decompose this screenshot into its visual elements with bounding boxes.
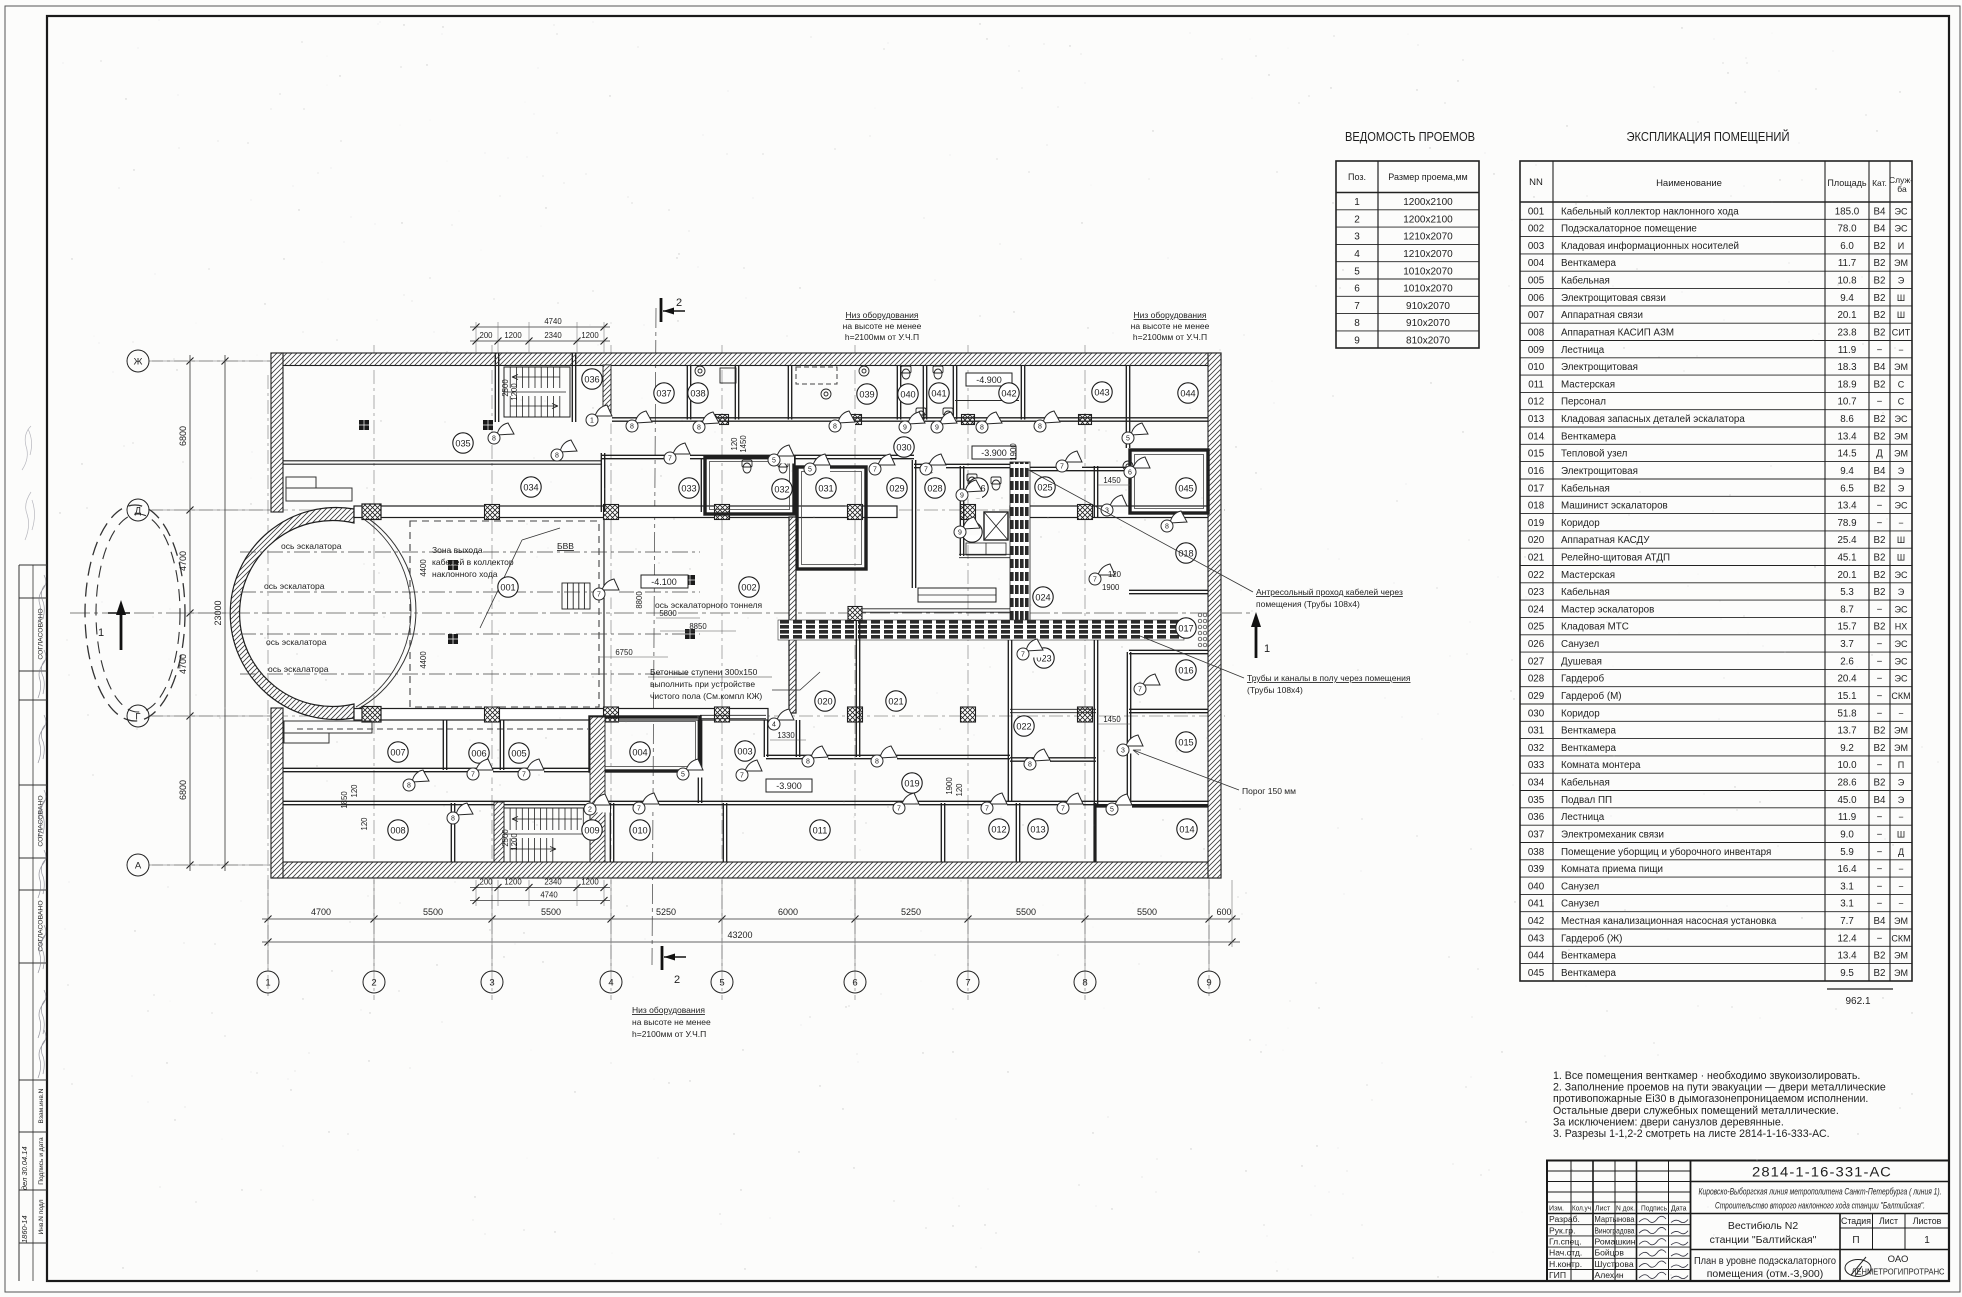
svg-text:Ш: Ш (1897, 310, 1905, 320)
svg-text:9.4: 9.4 (1840, 466, 1854, 477)
svg-text:032: 032 (774, 484, 789, 494)
svg-text:024: 024 (1035, 592, 1050, 602)
svg-text:021: 021 (888, 696, 903, 706)
svg-text:040: 040 (900, 389, 915, 399)
svg-text:033: 033 (1528, 760, 1545, 771)
svg-text:019: 019 (1528, 518, 1544, 529)
svg-text:П: П (1898, 760, 1904, 770)
svg-text:Кладовая МТС: Кладовая МТС (1561, 622, 1629, 633)
svg-text:041: 041 (1528, 899, 1544, 910)
svg-text:Низ оборудования: Низ оборудования (846, 310, 919, 320)
svg-text:Венткамера: Венткамера (1561, 726, 1616, 737)
svg-text:6000: 6000 (778, 907, 798, 917)
svg-text:ось эскалатора: ось эскалатора (264, 581, 325, 591)
svg-text:009: 009 (1528, 345, 1544, 356)
svg-text:9: 9 (903, 425, 907, 432)
svg-text:9: 9 (935, 425, 939, 432)
svg-text:Кол.уч: Кол.уч (1572, 1206, 1591, 1213)
svg-text:044: 044 (1528, 951, 1545, 962)
svg-text:2: 2 (674, 974, 680, 986)
svg-text:В2: В2 (1874, 951, 1886, 962)
svg-text:002: 002 (1528, 224, 1544, 235)
svg-text:006: 006 (471, 748, 486, 758)
svg-text:СОГЛАСОВАНО: СОГЛАСОВАНО (38, 900, 45, 951)
svg-text:Э: Э (1898, 276, 1905, 286)
svg-text:В2: В2 (1874, 310, 1886, 321)
svg-text:1900: 1900 (945, 777, 954, 795)
svg-text:23.8: 23.8 (1837, 328, 1857, 339)
svg-text:3.1: 3.1 (1840, 881, 1854, 892)
svg-text:-4.100: -4.100 (651, 577, 677, 587)
svg-text:13.4: 13.4 (1837, 951, 1857, 962)
svg-text:7: 7 (471, 772, 475, 779)
svg-text:1450: 1450 (1103, 476, 1121, 485)
svg-text:−: − (1877, 881, 1883, 892)
svg-text:дел 30.04.14: дел 30.04.14 (20, 1146, 29, 1190)
svg-text:8: 8 (980, 425, 984, 432)
svg-text:029: 029 (889, 483, 904, 493)
svg-text:Низ оборудования: Низ оборудования (1134, 310, 1207, 320)
svg-text:8850: 8850 (689, 622, 707, 631)
svg-text:Э: Э (1898, 483, 1905, 493)
svg-text:В2: В2 (1874, 483, 1886, 494)
svg-text:В2: В2 (1874, 258, 1886, 269)
svg-text:-4.900: -4.900 (976, 375, 1002, 385)
svg-text:В4: В4 (1874, 466, 1887, 477)
svg-text:ЭМ: ЭМ (1894, 449, 1908, 459)
svg-text:13.4: 13.4 (1837, 431, 1857, 442)
svg-text:Мартынова: Мартынова (1595, 1214, 1635, 1224)
svg-text:ГИП: ГИП (1549, 1270, 1566, 1280)
svg-text:13.4: 13.4 (1837, 501, 1857, 512)
svg-text:ЭМ: ЭМ (1894, 916, 1908, 926)
svg-text:Кат.: Кат. (1872, 178, 1887, 188)
svg-text:036: 036 (584, 374, 599, 384)
svg-text:1: 1 (1354, 197, 1360, 208)
svg-text:5: 5 (772, 458, 776, 465)
svg-text:017: 017 (1528, 483, 1544, 494)
svg-text:В4: В4 (1874, 224, 1887, 235)
svg-text:ЭМ: ЭМ (1894, 968, 1908, 978)
svg-text:2: 2 (588, 807, 592, 814)
svg-text:ЭС: ЭС (1895, 224, 1908, 234)
svg-text:на высоте не менее: на высоте не менее (843, 321, 922, 331)
svg-text:43200: 43200 (727, 930, 752, 940)
svg-text:−: − (1877, 501, 1883, 512)
svg-text:2: 2 (371, 978, 376, 989)
svg-text:003: 003 (737, 746, 752, 756)
svg-text:на высоте не менее: на высоте не менее (1131, 321, 1210, 331)
svg-text:Венткамера: Венткамера (1561, 258, 1616, 269)
svg-text:25.4: 25.4 (1837, 535, 1857, 546)
svg-text:007: 007 (1528, 310, 1544, 321)
svg-text:7: 7 (740, 773, 744, 780)
svg-text:022: 022 (1528, 570, 1544, 581)
svg-text:ба: ба (1897, 184, 1907, 194)
svg-text:7: 7 (1061, 806, 1065, 813)
svg-text:чистого пола (См.компл КЖ): чистого пола (См.компл КЖ) (650, 691, 762, 701)
svg-text:016: 016 (1178, 665, 1193, 675)
svg-text:1900: 1900 (1009, 443, 1018, 461)
svg-text:Инв.N подл: Инв.N подл (38, 1199, 45, 1234)
svg-text:А: А (135, 861, 142, 872)
svg-text:Комната монтера: Комната монтера (1561, 760, 1641, 771)
svg-text:ЭС: ЭС (1895, 674, 1908, 684)
svg-text:14.5: 14.5 (1837, 449, 1857, 460)
svg-text:7: 7 (924, 467, 928, 474)
svg-text:Персонал: Персонал (1561, 397, 1606, 408)
svg-text:Трубы и каналы в полу через по: Трубы и каналы в полу через помещения (1247, 673, 1411, 683)
svg-text:2500: 2500 (501, 379, 510, 397)
svg-text:010: 010 (632, 825, 647, 835)
svg-text:003: 003 (1528, 241, 1545, 252)
svg-text:ЭМ: ЭМ (1894, 362, 1908, 372)
svg-text:024: 024 (1528, 604, 1545, 615)
svg-text:СКМ: СКМ (1891, 691, 1910, 701)
svg-text:В2: В2 (1874, 968, 1886, 979)
svg-text:−: − (1898, 881, 1903, 891)
svg-text:8: 8 (1082, 978, 1087, 989)
svg-text:18.9: 18.9 (1837, 379, 1856, 390)
svg-text:033: 033 (681, 483, 696, 493)
svg-text:Ш: Ш (1897, 553, 1905, 563)
svg-text:6800: 6800 (178, 426, 188, 446)
svg-text:Ш: Ш (1897, 293, 1905, 303)
svg-text:010: 010 (1528, 362, 1545, 373)
svg-text:5250: 5250 (901, 907, 921, 917)
svg-text:7: 7 (1354, 301, 1360, 312)
svg-text:6.5: 6.5 (1840, 483, 1854, 494)
svg-text:5250: 5250 (656, 907, 676, 917)
svg-text:4700: 4700 (178, 551, 188, 571)
svg-text:−: − (1877, 691, 1883, 702)
svg-text:N док.: N док. (1616, 1206, 1635, 1213)
svg-text:041: 041 (931, 388, 946, 398)
svg-text:4700: 4700 (311, 907, 331, 917)
svg-text:Коридор: Коридор (1561, 518, 1600, 529)
svg-text:2814-1-16-331-АС: 2814-1-16-331-АС (1752, 1165, 1892, 1180)
svg-text:Дата: Дата (1671, 1206, 1687, 1213)
svg-text:008: 008 (1528, 328, 1545, 339)
svg-text:6.0: 6.0 (1840, 241, 1854, 252)
svg-text:7: 7 (597, 592, 601, 599)
svg-text:018: 018 (1178, 548, 1193, 558)
svg-text:5: 5 (808, 467, 812, 474)
svg-text:51.8: 51.8 (1837, 708, 1857, 719)
svg-text:45.1: 45.1 (1837, 553, 1856, 564)
svg-text:4740: 4740 (544, 317, 562, 326)
svg-text:5500: 5500 (541, 907, 561, 917)
svg-text:Электрощитовая связи: Электрощитовая связи (1561, 293, 1666, 304)
svg-text:036: 036 (1528, 812, 1545, 823)
svg-text:2. Заполнение проемов на п: 2. Заполнение проемов на пути эвакуации … (1553, 1082, 1886, 1094)
svg-text:Антресольный проход кабелей че: Антресольный проход кабелей через (1256, 587, 1403, 597)
svg-text:031: 031 (818, 483, 833, 493)
svg-text:2: 2 (676, 297, 682, 309)
svg-text:Помещение уборщиц и уборочного: Помещение уборщиц и уборочного инвентаря (1561, 847, 1771, 858)
svg-text:1: 1 (98, 627, 104, 639)
svg-text:−: − (1877, 397, 1883, 408)
svg-text:Площадь: Площадь (1827, 178, 1866, 188)
svg-text:7: 7 (965, 978, 970, 989)
svg-text:014: 014 (1179, 824, 1194, 834)
svg-text:120: 120 (360, 817, 369, 831)
svg-text:1. Все помещения венткамер: 1. Все помещения венткамер · необходимо … (1553, 1070, 1860, 1082)
svg-text:−: − (1877, 830, 1883, 841)
svg-text:039: 039 (859, 389, 874, 399)
svg-text:7: 7 (1138, 687, 1142, 694)
svg-text:В2: В2 (1874, 587, 1886, 598)
svg-text:910х2070: 910х2070 (1406, 318, 1450, 329)
svg-text:045: 045 (1528, 968, 1545, 979)
svg-text:011: 011 (1528, 379, 1544, 390)
svg-text:1200: 1200 (510, 383, 519, 401)
svg-text:022: 022 (1016, 721, 1031, 731)
svg-text:Вестибюль N2: Вестибюль N2 (1728, 1220, 1799, 1232)
svg-text:5800: 5800 (659, 609, 677, 618)
svg-text:034: 034 (523, 482, 538, 492)
svg-text:7: 7 (1021, 652, 1025, 659)
svg-text:наклонного хода: наклонного хода (432, 569, 498, 579)
svg-text:6: 6 (1128, 470, 1132, 477)
svg-text:Гардероб: Гардероб (1561, 674, 1604, 685)
svg-text:2: 2 (1354, 214, 1360, 225)
svg-text:Н.контр.: Н.контр. (1549, 1259, 1582, 1269)
svg-text:6: 6 (1354, 284, 1360, 295)
svg-text:1210х2070: 1210х2070 (1403, 232, 1453, 243)
svg-text:Кабельная: Кабельная (1561, 778, 1610, 789)
svg-text:−: − (1898, 345, 1903, 355)
svg-text:Э: Э (1898, 795, 1905, 805)
svg-text:−: − (1877, 345, 1883, 356)
svg-text:1: 1 (1924, 1235, 1930, 1246)
svg-text:h=2100мм от У.Ч.П: h=2100мм от У.Ч.П (1133, 332, 1207, 342)
svg-text:−: − (1877, 812, 1883, 823)
svg-text:Ш: Ш (1897, 830, 1905, 840)
svg-text:001: 001 (500, 582, 515, 592)
svg-text:БВВ: БВВ (557, 541, 574, 551)
svg-text:021: 021 (1528, 553, 1544, 564)
svg-text:2.6: 2.6 (1840, 656, 1854, 667)
svg-text:8: 8 (451, 816, 455, 823)
svg-text:4: 4 (1354, 249, 1360, 260)
svg-text:План в уровне подэскалаторного: План в уровне подэскалаторного (1694, 1255, 1836, 1267)
svg-text:042: 042 (1528, 916, 1544, 927)
svg-text:013: 013 (1528, 414, 1545, 425)
svg-text:8: 8 (555, 453, 559, 460)
svg-text:ЭС: ЭС (1895, 206, 1908, 216)
svg-text:Санузел: Санузел (1561, 899, 1599, 910)
svg-text:В2: В2 (1874, 431, 1886, 442)
svg-text:ОАО: ОАО (1888, 1254, 1909, 1265)
svg-text:8: 8 (492, 436, 496, 443)
svg-text:018: 018 (1528, 501, 1545, 512)
svg-text:9.2: 9.2 (1840, 743, 1854, 754)
svg-text:Санузел: Санузел (1561, 639, 1599, 650)
svg-text:−: − (1898, 708, 1903, 718)
svg-text:ВЕДОМОСТЬ ПРОЕМОВ: ВЕДОМОСТЬ ПРОЕМОВ (1345, 130, 1475, 144)
svg-text:023: 023 (1528, 587, 1545, 598)
svg-text:1200: 1200 (510, 833, 519, 851)
svg-text:035: 035 (455, 438, 470, 448)
svg-text:8.7: 8.7 (1840, 604, 1854, 615)
svg-text:Изм.: Изм. (1549, 1206, 1564, 1213)
svg-text:013: 013 (1030, 824, 1045, 834)
svg-text:962.1: 962.1 (1845, 996, 1870, 1007)
svg-text:5500: 5500 (1016, 907, 1036, 917)
svg-text:Лестница: Лестница (1561, 345, 1605, 356)
svg-text:039: 039 (1528, 864, 1544, 875)
svg-text:В2: В2 (1874, 414, 1886, 425)
svg-text:Наименование: Наименование (1656, 178, 1722, 189)
svg-text:017: 017 (1178, 623, 1193, 633)
svg-text:1: 1 (1264, 643, 1270, 655)
svg-text:Кабельная: Кабельная (1561, 483, 1610, 494)
svg-text:Кладовая информационных носите: Кладовая информационных носителей (1561, 241, 1739, 252)
svg-text:78.0: 78.0 (1837, 224, 1857, 235)
svg-text:20.1: 20.1 (1837, 570, 1856, 581)
svg-text:В2: В2 (1874, 778, 1886, 789)
svg-text:И: И (1898, 241, 1904, 251)
svg-text:−: − (1877, 639, 1883, 650)
svg-text:1010х2070: 1010х2070 (1403, 284, 1453, 295)
svg-text:NN: NN (1529, 177, 1543, 188)
svg-text:6800: 6800 (178, 780, 188, 800)
svg-text:015: 015 (1178, 737, 1193, 747)
svg-text:8: 8 (833, 424, 837, 431)
svg-text:002: 002 (741, 582, 756, 592)
svg-text:ЭС: ЭС (1895, 604, 1908, 614)
svg-text:помещения (отм.-3,900): помещения (отм.-3,900) (1707, 1268, 1824, 1280)
svg-text:18.3: 18.3 (1837, 362, 1857, 373)
svg-text:Электромеханик связи: Электромеханик связи (1561, 830, 1664, 841)
svg-text:5: 5 (681, 772, 685, 779)
svg-text:005: 005 (511, 748, 526, 758)
svg-text:В4: В4 (1874, 362, 1887, 373)
svg-text:Мастерская: Мастерская (1561, 570, 1615, 581)
svg-text:Мастерская: Мастерская (1561, 379, 1615, 390)
svg-text:5: 5 (719, 978, 724, 989)
svg-text:Д: Д (135, 506, 142, 517)
svg-text:Ж: Ж (134, 357, 143, 368)
svg-text:Листов: Листов (1913, 1216, 1942, 1226)
svg-text:1: 1 (265, 978, 270, 989)
svg-text:9.5: 9.5 (1840, 968, 1854, 979)
svg-text:−: − (1898, 518, 1903, 528)
svg-text:Алехин: Алехин (1595, 1270, 1624, 1280)
svg-text:032: 032 (1528, 743, 1544, 754)
svg-text:h=2100мм от У.Ч.П: h=2100мм от У.Ч.П (845, 332, 919, 342)
svg-text:Э: Э (1898, 466, 1905, 476)
svg-text:120: 120 (955, 783, 964, 797)
svg-text:С: С (1898, 379, 1905, 389)
svg-text:Лист: Лист (1595, 1206, 1611, 1213)
svg-text:11.9: 11.9 (1838, 812, 1856, 823)
svg-text:ось эскалатора: ось эскалатора (268, 664, 329, 674)
svg-text:Комната приема пищи: Комната приема пищи (1561, 864, 1663, 875)
svg-text:ЭС: ЭС (1895, 414, 1908, 424)
svg-text:4400: 4400 (419, 559, 428, 577)
svg-text:ЭС: ЭС (1895, 639, 1908, 649)
svg-text:Подвал ПП: Подвал ПП (1561, 795, 1612, 806)
svg-text:026: 026 (1528, 639, 1545, 650)
svg-text:Г: Г (135, 712, 140, 723)
svg-text:−: − (1898, 812, 1903, 822)
svg-text:025: 025 (1528, 622, 1545, 633)
svg-text:Ш: Ш (1897, 535, 1905, 545)
svg-text:противопожарные Ei30 в дымо: противопожарные Ei30 в дымогазонепроница… (1553, 1093, 1868, 1105)
svg-text:В4: В4 (1874, 795, 1887, 806)
svg-text:В2: В2 (1874, 622, 1886, 633)
svg-text:За исключением: двери сан: За исключением: двери санузлов деревянны… (1553, 1116, 1784, 1128)
svg-text:1850: 1850 (340, 791, 349, 809)
svg-text:030: 030 (1528, 708, 1545, 719)
svg-text:Низ оборудования: Низ оборудования (632, 1005, 705, 1015)
svg-text:15.1: 15.1 (1837, 691, 1856, 702)
svg-text:Подэскалаторное помещение: Подэскалаторное помещение (1561, 224, 1697, 235)
svg-text:6: 6 (852, 978, 857, 989)
svg-text:012: 012 (1528, 397, 1544, 408)
svg-text:Нач.отд.: Нач.отд. (1549, 1248, 1582, 1258)
svg-text:011: 011 (813, 825, 828, 835)
svg-text:Зона выхода: Зона выхода (432, 545, 483, 555)
svg-text:007: 007 (390, 747, 405, 757)
svg-text:(Трубы 108х4): (Трубы 108х4) (1247, 685, 1303, 695)
svg-text:5: 5 (1110, 807, 1114, 814)
svg-text:2500: 2500 (501, 829, 510, 847)
svg-text:038: 038 (690, 388, 705, 398)
svg-text:Разраб.: Разраб. (1549, 1214, 1580, 1224)
svg-text:3: 3 (489, 978, 494, 989)
svg-text:В2: В2 (1874, 241, 1886, 252)
svg-text:В2: В2 (1874, 570, 1886, 581)
svg-text:Кабельная: Кабельная (1561, 276, 1610, 287)
svg-text:12.4: 12.4 (1837, 933, 1857, 944)
svg-text:1200: 1200 (504, 878, 522, 887)
svg-text:на высоте не менее: на высоте не менее (632, 1017, 711, 1027)
svg-text:8.6: 8.6 (1840, 414, 1854, 425)
svg-text:Бетонные ступени 300х150: Бетонные ступени 300х150 (650, 667, 758, 677)
svg-text:Виноградова: Виноградова (1595, 1225, 1635, 1235)
svg-text:9: 9 (958, 530, 962, 537)
svg-text:Электрощитовая: Электрощитовая (1561, 362, 1638, 373)
svg-text:2340: 2340 (544, 331, 562, 340)
svg-text:043: 043 (1094, 387, 1109, 397)
svg-text:28.6: 28.6 (1837, 778, 1857, 789)
svg-text:ЭМ: ЭМ (1894, 951, 1908, 961)
svg-text:5500: 5500 (423, 907, 443, 917)
svg-text:4: 4 (608, 978, 613, 989)
svg-text:016: 016 (1528, 466, 1545, 477)
svg-text:3.7: 3.7 (1840, 639, 1854, 650)
svg-text:ЭС: ЭС (1895, 656, 1908, 666)
svg-text:3: 3 (1354, 232, 1360, 243)
svg-text:В4: В4 (1874, 206, 1887, 217)
svg-text:ЭС: ЭС (1895, 570, 1908, 580)
svg-text:Аппаратная КАСДУ: Аппаратная КАСДУ (1561, 535, 1650, 546)
svg-text:П: П (1852, 1235, 1859, 1246)
svg-text:1450: 1450 (1103, 715, 1121, 724)
svg-text:5: 5 (1126, 436, 1130, 443)
svg-text:Гардероб (М): Гардероб (М) (1561, 691, 1622, 702)
svg-text:031: 031 (1528, 726, 1544, 737)
svg-text:Венткамера: Венткамера (1561, 968, 1616, 979)
svg-text:Подпись и дата: Подпись и дата (38, 1137, 45, 1185)
svg-text:9: 9 (960, 493, 964, 500)
svg-text:В2: В2 (1874, 535, 1886, 546)
svg-text:−: − (1877, 899, 1883, 910)
svg-text:Венткамера: Венткамера (1561, 951, 1616, 962)
